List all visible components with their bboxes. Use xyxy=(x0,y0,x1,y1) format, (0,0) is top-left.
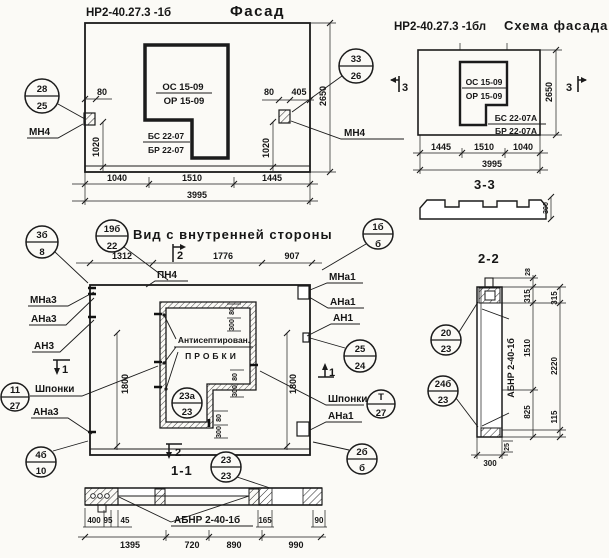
section-label-1-1: 1-1 xyxy=(171,463,193,478)
callout-bottom: 25 xyxy=(37,101,48,112)
facade-or-label: ОР 15-09 xyxy=(164,96,205,107)
dim-990: 990 xyxy=(288,540,303,550)
dim-2650-scheme: 2650 xyxy=(544,82,554,102)
small-dims-c: 80 300 xyxy=(214,411,228,438)
label-ana1-b: АНа1 xyxy=(310,411,362,430)
inner-dim-1800-left: 1800 xyxy=(114,330,130,450)
callout-top: 4б xyxy=(35,450,46,461)
callout-top: 24б xyxy=(435,379,452,390)
dim-400: 400 xyxy=(87,516,101,525)
dim-80-right: 80 xyxy=(264,87,274,97)
label-ana3-b: АНа3 xyxy=(31,407,92,434)
s11-right-hatch-a xyxy=(259,488,272,505)
ana1-text: АНа1 xyxy=(328,411,354,422)
callout-28-25: 28 25 xyxy=(25,79,85,119)
facade-anchor-right xyxy=(279,110,290,123)
an3-text: АН3 xyxy=(34,341,54,352)
dim-1445-s: 1445 xyxy=(431,142,451,152)
dim-1395: 1395 xyxy=(120,540,140,550)
callout-bottom: 27 xyxy=(10,401,21,412)
facade-sill-mark: БС 22-07 БР 22-07 xyxy=(143,131,190,155)
callout-top: 33 xyxy=(351,54,362,65)
s11-dims-row2: 1395 720 890 990 xyxy=(78,530,326,550)
ana1-text: АНа1 xyxy=(330,297,356,308)
ana3-text: АНа3 xyxy=(31,314,57,325)
callout-bottom: б xyxy=(375,239,381,250)
s22-top-anchor-core xyxy=(485,291,495,300)
mna1-text: МНа1 xyxy=(329,272,356,283)
inner-view-drawing: Вид с внутренней стороны 19б 22 1б б 131… xyxy=(1,219,395,490)
section-marker-1-right: 1 xyxy=(318,363,335,379)
facade-br-label: БР 22-07 xyxy=(148,145,184,155)
dim-1800-left: 1800 xyxy=(120,374,130,394)
callout-20-23: 20 23 xyxy=(431,302,478,355)
dim-80-small: 80 xyxy=(229,307,236,315)
facade-code: НР2-40.27.3 -1б xyxy=(86,7,171,19)
callout-25-24: 25 24 xyxy=(310,338,376,372)
callout-bottom: 23 xyxy=(441,344,452,355)
dim-28: 28 xyxy=(525,268,532,276)
dim-300-profile: 300 xyxy=(543,202,550,214)
callout-top: 19б xyxy=(104,224,121,235)
s11-rebar xyxy=(98,494,103,499)
profile-3-3: 300 xyxy=(420,194,554,222)
shponki-text: Шпонки xyxy=(35,384,74,395)
callout-top: 23 xyxy=(221,455,232,466)
callout-bottom: 24 xyxy=(355,361,366,372)
facade-dim-height: 2650 xyxy=(310,20,336,175)
callout-top: 23а xyxy=(179,391,196,402)
marker-3-text: 3 xyxy=(402,82,408,94)
scheme-window-mark: ОС 15-09 ОР 15-09 xyxy=(462,77,506,101)
note-line1: Антисептирован. xyxy=(178,335,250,345)
callout-bottom: б xyxy=(359,463,365,474)
callout-3b-8: 3б 8 xyxy=(26,226,88,283)
dim-1020-left: 1020 xyxy=(91,137,101,157)
dim-1510: 1510 xyxy=(523,339,532,357)
section-marker-2-top: 2 xyxy=(173,244,186,262)
marker-2-text: 2 xyxy=(177,250,183,262)
s11-top-flange xyxy=(118,488,249,496)
marker-2-text: 2 xyxy=(175,447,181,459)
s11-rib-right xyxy=(249,489,259,505)
callout-top: 28 xyxy=(37,84,48,95)
shponki-text: Шпонки xyxy=(328,394,367,405)
facade-dim-left: 80 1020 xyxy=(82,87,112,171)
dim-1510-s: 1510 xyxy=(474,142,494,152)
inner-anchor-mid-right xyxy=(303,333,309,342)
callout-bottom: 8 xyxy=(39,247,44,258)
dim-80-left: 80 xyxy=(97,87,107,97)
label-an1: АН1 xyxy=(307,313,360,336)
section-2-2-drawing: 2-2 АБНР 2-40-1б 28 315 1510 825 315 222… xyxy=(428,251,566,468)
marker-1-text: 1 xyxy=(62,364,68,376)
s11-hook xyxy=(98,505,106,512)
callout-bottom: 23 xyxy=(438,395,449,406)
dim-907: 907 xyxy=(284,251,299,261)
section-marker-3-right: 3 xyxy=(566,76,587,94)
label-mna1: МНа1 xyxy=(310,272,363,290)
mn4-text: МН4 xyxy=(344,128,366,139)
dim-2650-facade: 2650 xyxy=(318,86,328,106)
section-title-2-2: 2-2 xyxy=(478,251,500,266)
callout-bottom: 26 xyxy=(351,71,362,82)
inner-anchor-bottom-right xyxy=(297,422,309,436)
dim-890: 890 xyxy=(226,540,241,550)
dim-1312: 1312 xyxy=(112,251,132,261)
s22-bottom-anchor xyxy=(481,428,500,437)
inner-title: Вид с внутренней стороны xyxy=(133,227,333,242)
dim-80-small: 80 xyxy=(232,373,239,381)
dim-115: 115 xyxy=(550,410,559,423)
section-marker-3-left: 3 xyxy=(390,76,408,94)
callout-23-23: 23 23 xyxy=(211,452,276,490)
dim-90: 90 xyxy=(315,516,324,525)
note-line2: ПРОБКИ xyxy=(185,351,239,361)
dim-80-small: 80 xyxy=(216,414,223,422)
dim-405-right: 405 xyxy=(291,87,306,97)
scheme-bs-label: БС 22-07А xyxy=(495,113,537,123)
dim-25: 25 xyxy=(504,443,511,451)
label-ana1: АНа1 xyxy=(309,297,364,308)
callout-bottom: 10 xyxy=(36,466,47,477)
dim-3995-scheme: 3995 xyxy=(482,159,502,169)
callout-4b-10: 4б 10 xyxy=(26,441,88,477)
dim-300-small: 300 xyxy=(216,426,223,438)
callout-bottom: 23 xyxy=(221,471,232,482)
dim-300-small: 300 xyxy=(229,319,236,331)
section-1-1-drawing: 400 95 45 165 90 АБНР 2-40-1б 1395 720 8… xyxy=(78,488,327,550)
callout-bottom: 23 xyxy=(182,407,193,418)
abnr-text: АБНР 2-40-1б xyxy=(174,514,240,526)
dim-3995-facade: 3995 xyxy=(187,190,207,200)
callout-top: 3б xyxy=(36,230,47,241)
abnr-text-rotated: АБНР 2-40-1б xyxy=(506,338,516,398)
label-shponki-left: Шпонки xyxy=(30,366,158,396)
dim-1800-right: 1800 xyxy=(288,374,298,394)
section-marker-1-left: 1 xyxy=(53,360,70,376)
dim-95: 95 xyxy=(104,516,113,525)
facade-drawing: НР2-40.27.3 -1б Фасад ОС 15-09 ОР 15-09 … xyxy=(25,3,404,205)
callout-33-26: 33 26 xyxy=(292,49,373,112)
scheme-dim-bottom: 1445 1510 1040 3995 xyxy=(413,135,548,174)
dim-315-outer: 315 xyxy=(550,291,559,305)
label-mna3: МНа3 xyxy=(28,292,94,306)
dim-1020-right: 1020 xyxy=(261,138,271,158)
dim-1510: 1510 xyxy=(182,173,202,183)
profile-3-3-shape xyxy=(420,200,546,219)
facade-dim-bottom: 1040 1510 1445 3995 xyxy=(72,172,318,205)
dim-300-width: 300 xyxy=(483,459,497,468)
dim-45: 45 xyxy=(121,516,130,525)
s22-dim-bottom: 25 300 xyxy=(471,437,513,468)
dim-825: 825 xyxy=(523,405,532,419)
callout-11-27: 11 27 xyxy=(1,383,29,412)
ana3-text: АНа3 xyxy=(33,407,59,418)
label-mn4-left: МН4 xyxy=(27,124,83,138)
facade-dim-right: 80 405 1020 xyxy=(261,87,314,171)
inner-anchor-top-right xyxy=(298,286,309,299)
callout-top: 1б xyxy=(372,222,383,233)
facade-window-mark: ОС 15-09 ОР 15-09 xyxy=(156,82,212,107)
section-marker-2-bottom: 2 xyxy=(166,444,182,459)
callout-top: 20 xyxy=(441,328,452,339)
callout-24b-23: 24б 23 xyxy=(428,376,478,427)
dim-1445: 1445 xyxy=(262,173,282,183)
callout-2b-b: 2б б xyxy=(313,442,377,474)
dim-315-inner: 315 xyxy=(523,289,532,303)
section-label-3-3: 3-3 xyxy=(474,177,496,192)
drawing-sheet: НР2-40.27.3 -1б Фасад ОС 15-09 ОР 15-09 … xyxy=(0,0,609,558)
label-mn4-right: МН4 xyxy=(291,121,404,139)
dim-1040-s: 1040 xyxy=(513,142,533,152)
callout-23a-23: 23а 23 xyxy=(172,388,202,418)
facade-title: Фасад xyxy=(230,3,285,20)
s11-label: АБНР 2-40-1б xyxy=(119,496,253,526)
callout-top: 25 xyxy=(355,344,366,355)
dim-300-small: 300 xyxy=(232,385,239,397)
facade-bs-label: БС 22-07 xyxy=(148,131,185,141)
inner-panel-outline xyxy=(90,285,310,455)
scheme-br-label: БР 22-07А xyxy=(495,126,537,136)
facade-anchor-left xyxy=(84,113,95,125)
scheme-sill-mark: БС 22-07А БР 22-07А xyxy=(488,113,546,136)
s11-rebar xyxy=(105,494,110,499)
pn4-text: ПН4 xyxy=(157,270,177,281)
callout-bottom: 27 xyxy=(376,408,387,419)
s11-rib-left xyxy=(155,489,165,505)
callout-top: Т xyxy=(378,392,384,403)
callout-1b-b: 1б б xyxy=(322,219,393,270)
s11-rebar xyxy=(91,494,96,499)
callout-top: 2б xyxy=(356,447,367,458)
dim-1040: 1040 xyxy=(107,173,127,183)
marker-3-text: 3 xyxy=(566,82,572,94)
dim-720: 720 xyxy=(184,540,199,550)
scheme-drawing: НР2-40.27.3 -1бл Схема фасада ОС 15-09 О… xyxy=(390,18,608,222)
dim-165: 165 xyxy=(258,516,272,525)
an1-text: АН1 xyxy=(333,313,353,324)
facade-os-label: ОС 15-09 xyxy=(162,82,203,93)
callout-t-27: Т 27 xyxy=(367,390,395,419)
technical-drawing: НР2-40.27.3 -1б Фасад ОС 15-09 ОР 15-09 … xyxy=(0,0,609,558)
dim-2220: 2220 xyxy=(550,357,559,375)
s22-top-lug xyxy=(485,278,493,287)
scheme-os-label: ОС 15-09 xyxy=(466,77,503,87)
marker-1-text: 1 xyxy=(329,367,335,379)
s11-right-hatch-b xyxy=(303,488,322,505)
scheme-title: Схема фасада xyxy=(504,18,608,33)
dim-1776: 1776 xyxy=(213,251,233,261)
label-shponki-right: Шпонки xyxy=(260,371,367,405)
mn4-text: МН4 xyxy=(29,127,51,138)
scheme-code: НР2-40.27.3 -1бл xyxy=(394,21,486,33)
mna3-text: МНа3 xyxy=(30,295,57,306)
inner-dim-top: 1312 1776 907 xyxy=(76,251,322,266)
scheme-or-label: ОР 15-09 xyxy=(466,91,503,101)
antiseptic-note: Антисептирован. ПРОБКИ xyxy=(162,313,253,390)
callout-top: 11 xyxy=(10,385,21,396)
